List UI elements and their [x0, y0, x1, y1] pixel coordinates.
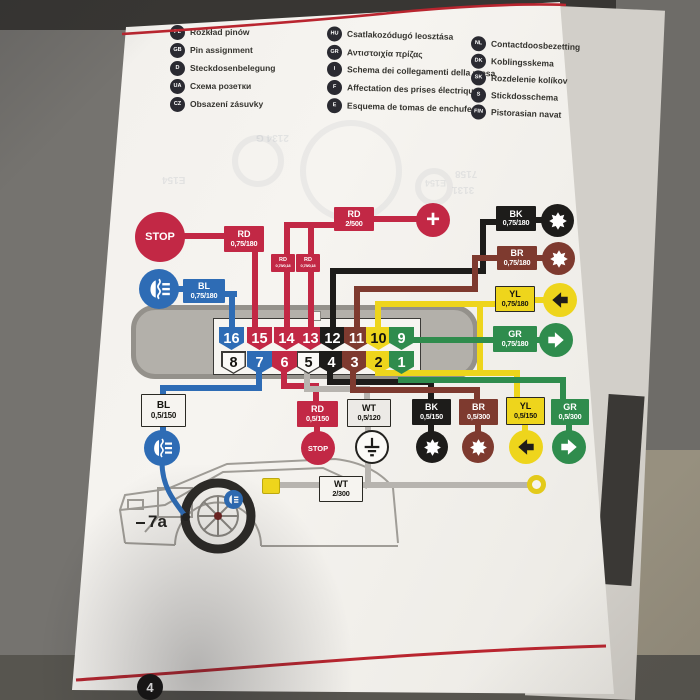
- tail-light-icon-brown: [542, 242, 575, 275]
- label-rd-jumper-2: RD0,75/0,18: [296, 254, 320, 272]
- left-indicator-icon: [543, 283, 577, 317]
- label-bl-075-180: BL0,75/180: [183, 279, 225, 303]
- wire-red-stop: [182, 233, 227, 239]
- photographed-wiring-instruction-page: 2134 G E154 7158 3131 E154 PLRozkład pin…: [0, 0, 700, 700]
- label-rd-05-150: RD0,5/150: [297, 401, 338, 427]
- spade-terminal: [262, 478, 280, 494]
- wire-brown-v: [472, 256, 478, 292]
- label-gr-05-300: GR0,5/300: [551, 399, 589, 425]
- label-wt-2-300: WT2/300: [319, 476, 363, 502]
- wire-red-pin13: [308, 224, 314, 330]
- wire-red-pin14: [284, 224, 290, 330]
- label-bk-075-180: BK0,75/180: [496, 206, 536, 231]
- wire-brown-h: [354, 286, 478, 292]
- wire-red-plus: [373, 216, 419, 222]
- page-number-badge: 4: [137, 674, 163, 700]
- label-wt-05-120: WT0,5/120: [347, 399, 391, 427]
- label-br-075-180: BR0,75/180: [497, 246, 537, 270]
- wire-brown-pin11: [354, 286, 360, 330]
- car-fog-light-badge: [224, 490, 243, 509]
- label-bl-05-150: BL0,5/150: [141, 394, 186, 427]
- right-indicator-icon: [539, 323, 573, 357]
- wire-black-pin12: [330, 268, 336, 330]
- wire-yellow-bbox: [514, 370, 520, 399]
- label-gr-075-180: GR0,75/180: [493, 326, 537, 352]
- wire-white-main: [276, 482, 529, 488]
- rear-fog-light-icon: [139, 269, 179, 309]
- rear-fog-light-icon-bottom: [144, 430, 180, 466]
- stop-light-symbol: STOP: [135, 212, 185, 262]
- car-illustration: [105, 448, 405, 573]
- tail-light-icon-black-bottom: [416, 431, 448, 463]
- ground-symbol: [355, 430, 389, 464]
- label-yl-05-150: YL0,5/150: [506, 397, 545, 425]
- wire-black-h: [330, 268, 486, 274]
- label-rd-jumper-1: RD0,75/0,18: [271, 254, 295, 272]
- label-br-05-300: BR0,5/300: [459, 399, 498, 425]
- wire-black-v: [480, 220, 486, 274]
- wire-red-join: [284, 222, 339, 228]
- right-indicator-icon-bottom: [552, 430, 586, 464]
- wire-blue-bh: [160, 385, 262, 391]
- label-rd-075-180: RD0,75/180: [224, 226, 264, 252]
- label-bk-05-150: BK0,5/150: [412, 399, 451, 425]
- wire-green-pin9: [410, 337, 495, 343]
- stop-light-symbol-bottom: STOP: [301, 431, 335, 465]
- wire-red-pin15: [252, 250, 258, 330]
- wire-brown-bh: [350, 387, 480, 393]
- ring-terminal: [527, 475, 546, 494]
- wire-blue-pin16: [229, 291, 235, 330]
- label-rd-2-500: RD2/500: [334, 207, 374, 231]
- wire-brown-box: [472, 255, 499, 261]
- tail-light-icon-brown-bottom: [462, 431, 494, 463]
- car-location-ref: 7a: [136, 512, 167, 532]
- wire-green-bbox: [560, 377, 566, 401]
- tail-light-icon-black: [541, 204, 574, 237]
- label-yl-075-180: YL0,75/180: [495, 286, 535, 312]
- battery-plus-symbol: +: [416, 203, 450, 237]
- wire-green-pin1: [398, 377, 566, 383]
- left-indicator-icon-bottom: [509, 430, 543, 464]
